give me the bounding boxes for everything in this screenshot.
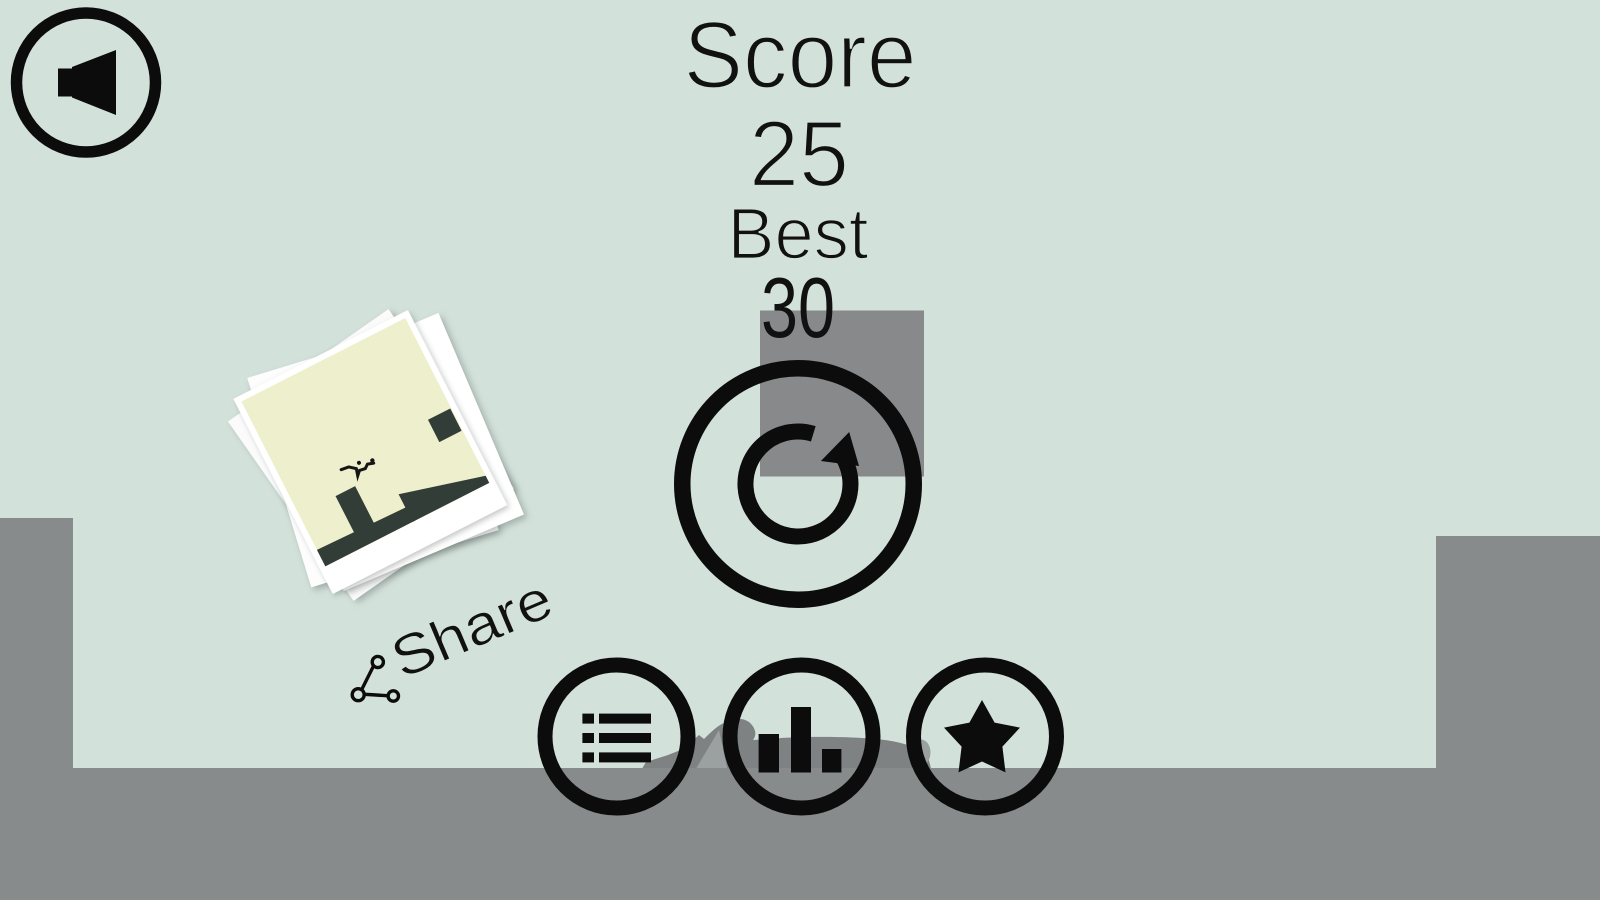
svg-text:25: 25 xyxy=(749,101,849,206)
svg-text:30: 30 xyxy=(761,261,835,356)
svg-text:Score: Score xyxy=(684,3,917,109)
